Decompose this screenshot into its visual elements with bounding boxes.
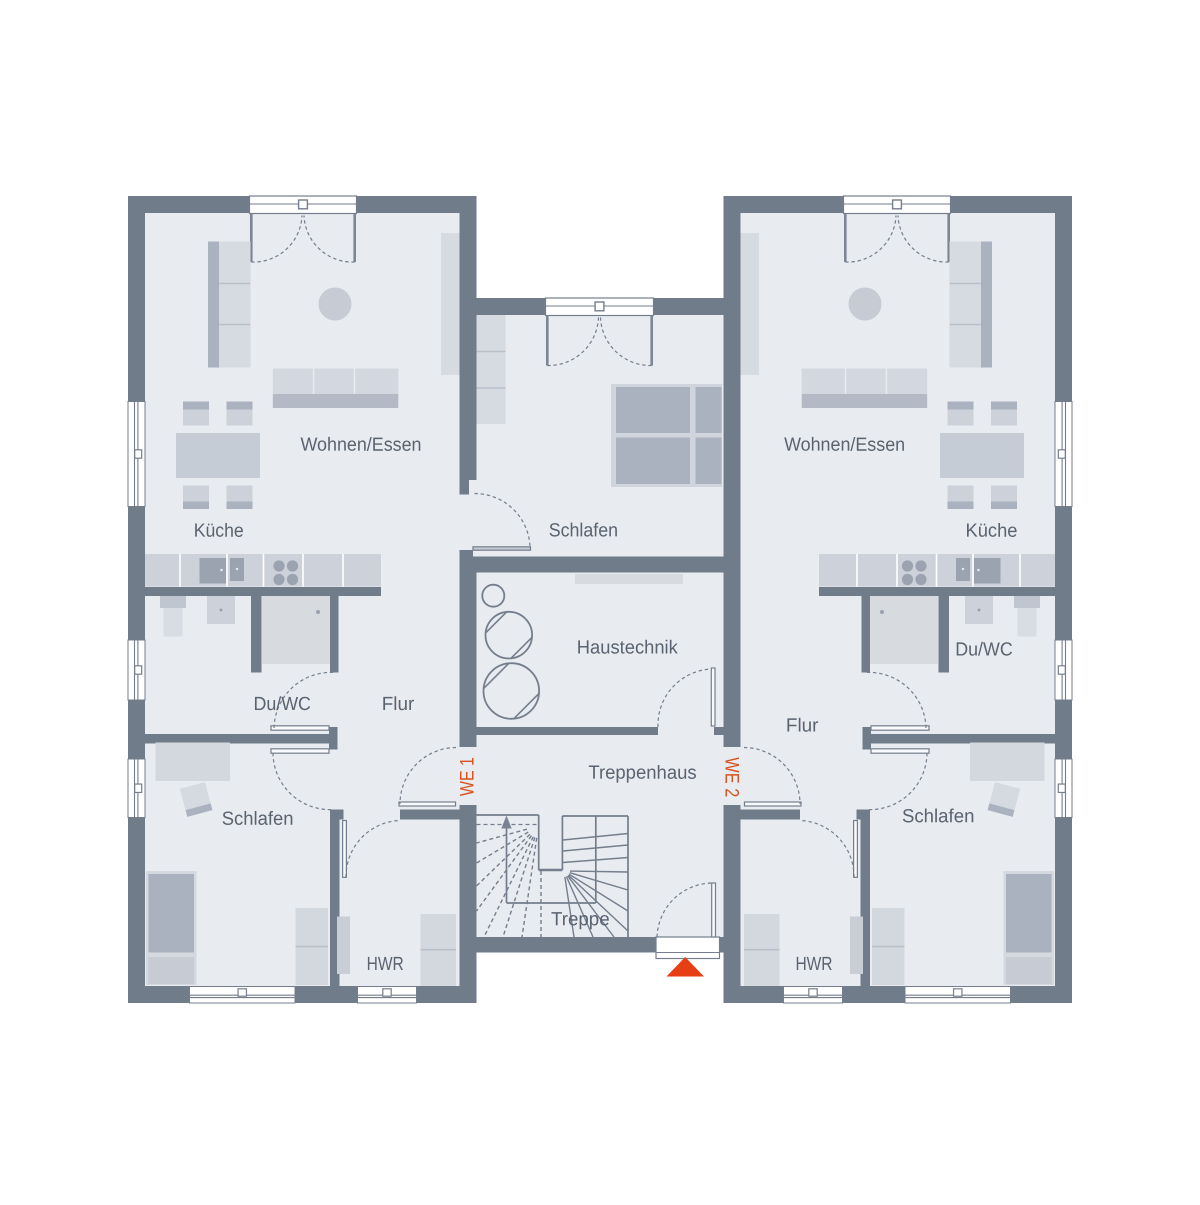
svg-text:Treppenhaus: Treppenhaus <box>588 763 696 784</box>
svg-text:WE 2: WE 2 <box>721 757 743 797</box>
svg-text:Du/WC: Du/WC <box>253 694 311 715</box>
svg-text:HWR: HWR <box>367 954 404 975</box>
svg-text:Küche: Küche <box>965 521 1017 542</box>
svg-text:HWR: HWR <box>795 954 832 975</box>
svg-text:Flur: Flur <box>382 694 415 715</box>
svg-text:Wohnen/Essen: Wohnen/Essen <box>784 435 905 456</box>
svg-text:Flur: Flur <box>786 715 819 736</box>
svg-text:Haustechnik: Haustechnik <box>577 637 678 658</box>
svg-text:Küche: Küche <box>194 521 244 542</box>
svg-text:Schlafen: Schlafen <box>222 809 294 830</box>
svg-text:Treppe: Treppe <box>551 909 610 930</box>
svg-text:Wohnen/Essen: Wohnen/Essen <box>300 435 421 456</box>
svg-text:Du/WC: Du/WC <box>955 639 1013 660</box>
svg-text:Schlafen: Schlafen <box>549 520 618 541</box>
svg-text:Schlafen: Schlafen <box>902 806 975 827</box>
svg-text:WE 1: WE 1 <box>457 757 479 796</box>
